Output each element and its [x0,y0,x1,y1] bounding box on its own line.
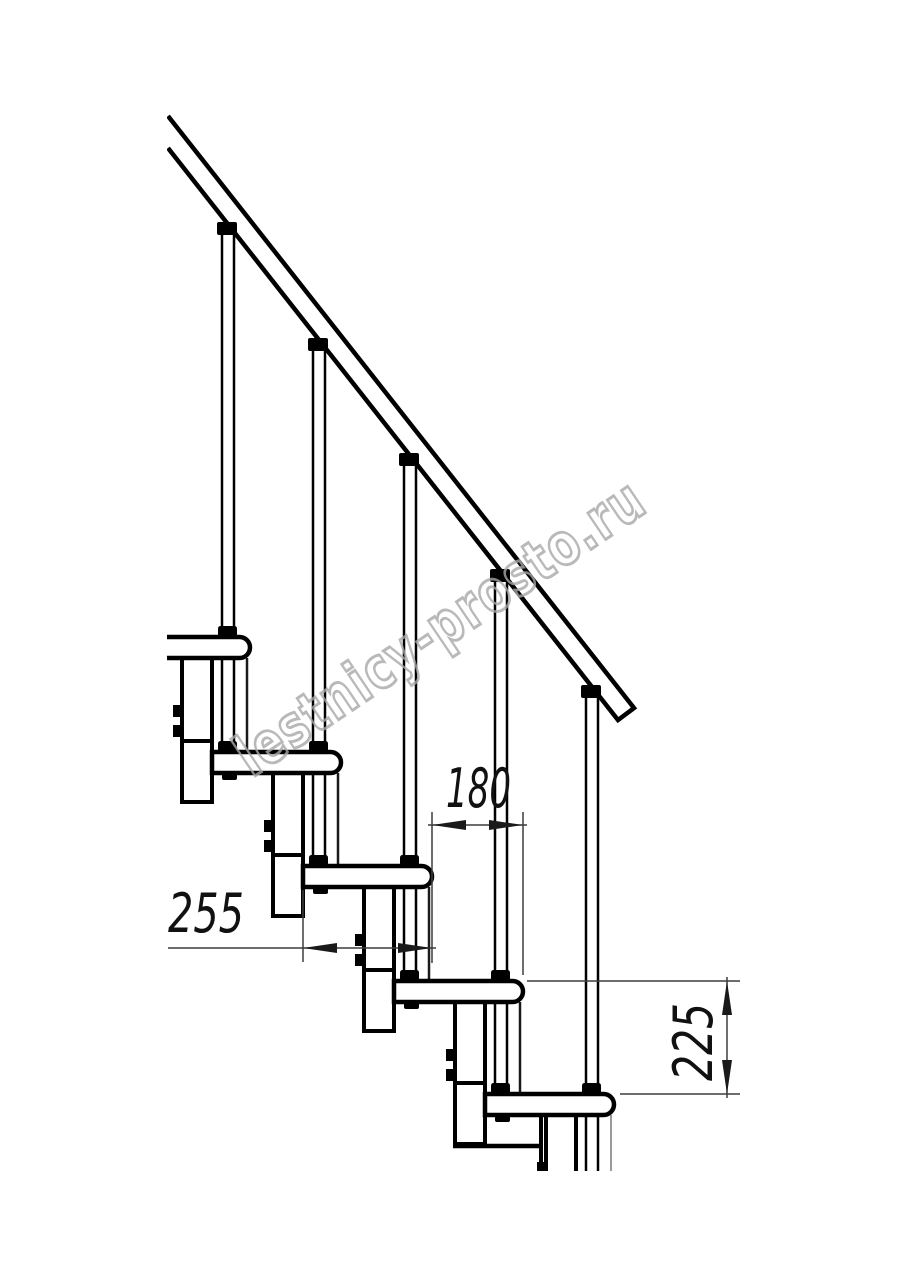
support-column-5 [546,1113,576,1177]
baluster-5 [586,693,598,1096]
bolt-1b [173,725,182,737]
step-5 [485,1094,614,1115]
rod-cap-4 [491,1083,510,1094]
staircase-section-drawing: 255 180 225 lestnicy-prosto.ru [0,0,914,1280]
baluster-1 [222,230,234,639]
bolt-1a [173,705,182,717]
baluster-base-4 [491,970,510,981]
step-tab-4 [404,1000,419,1009]
stair-module-1 [182,230,247,802]
step-1 [121,637,250,658]
step-3 [303,866,432,887]
support-column-4 [455,1000,485,1144]
staircase-drawing-page: 255 180 225 lestnicy-prosto.ru [0,0,914,1280]
step-tab-3 [313,885,328,894]
rail-connector-1 [217,222,237,235]
dimension-label-225: 225 [662,1003,725,1081]
support-column-2 [273,771,303,916]
watermark-text: lestnicy-prosto.ru [222,465,658,790]
support-column-3 [364,885,394,1031]
step-tab-2 [222,771,237,780]
baluster-base-1 [218,626,237,637]
dimension-label-255: 255 [168,882,244,945]
bolt-3a [355,934,364,946]
bolt-3b [355,954,364,966]
dimension-step-offset: 180 [428,757,527,975]
rod-cap-2 [309,855,328,866]
dimension-label-180: 180 [446,757,511,820]
bolt-5a [537,1162,546,1174]
dimension-rise: 225 [527,977,740,1098]
rail-connector-2 [308,338,328,351]
step-tab-5 [495,1113,510,1122]
rail-connector-3 [399,453,419,466]
step-4 [394,981,523,1002]
rod-cap-3 [400,970,419,981]
stair-module-3 [364,461,429,1031]
baluster-base-3 [400,855,419,866]
baluster-base-5 [582,1083,601,1094]
support-column-1 [182,656,212,802]
stair-module-2 [273,346,338,916]
bolt-4b [446,1069,455,1081]
rail-connector-5 [581,685,601,698]
bolt-4a [446,1049,455,1061]
bolt-2a [264,820,273,832]
bolt-2b [264,840,273,852]
